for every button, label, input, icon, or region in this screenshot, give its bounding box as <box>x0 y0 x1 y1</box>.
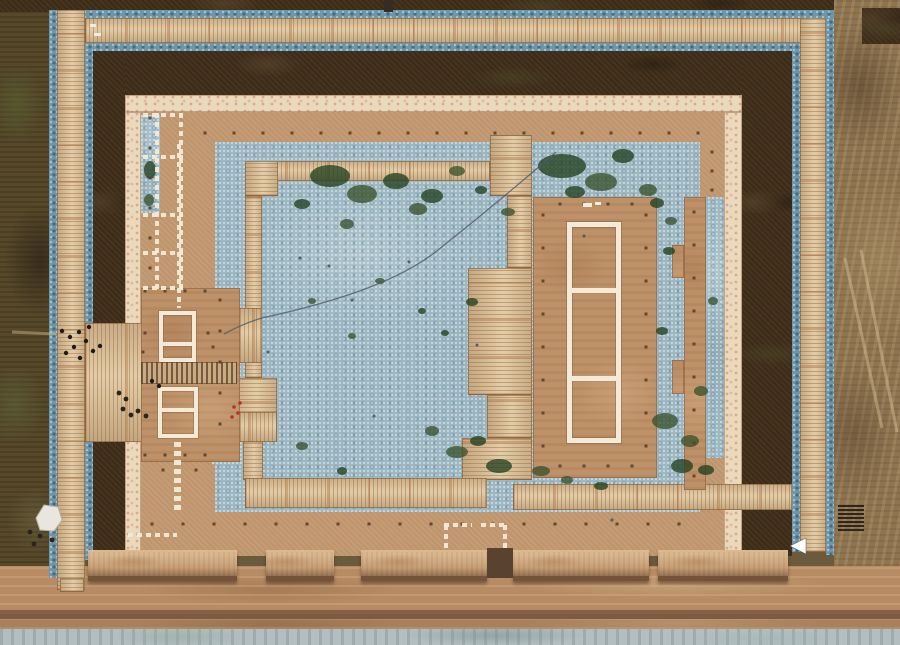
gravel-speck <box>476 344 479 347</box>
post-hole-dot <box>399 523 402 526</box>
post-hole-dot <box>162 469 165 472</box>
moss-patch <box>708 297 718 305</box>
post-hole-dot <box>149 177 152 180</box>
moss-patch <box>538 154 586 178</box>
field-trail <box>12 332 56 334</box>
gravel-speck <box>351 299 354 302</box>
gravel-speck <box>583 235 586 238</box>
moss-patch <box>144 161 156 179</box>
visitor-person <box>150 379 154 383</box>
moss-patch <box>294 199 310 209</box>
post-hole-dot <box>542 247 545 250</box>
moss-patch <box>449 166 465 176</box>
gravel-speck <box>267 351 270 354</box>
post-hole-dot <box>693 343 696 346</box>
post-hole-dot <box>711 170 714 173</box>
post-hole-dot <box>711 189 714 192</box>
post-hole-dot <box>631 203 634 206</box>
moss-patch <box>347 185 377 203</box>
post-hole-dot <box>142 351 145 354</box>
equipment-mark <box>32 542 37 547</box>
post-hole-dot <box>542 214 545 217</box>
moss-patch <box>565 186 585 198</box>
moss-patch <box>144 194 154 206</box>
visitor-person <box>98 344 102 348</box>
moss-patch <box>694 386 708 396</box>
moss-patch <box>425 426 439 436</box>
post-hole-dot <box>645 346 648 349</box>
post-hole-dot <box>378 132 381 135</box>
moss-patch <box>665 217 677 225</box>
post-hole-dot <box>212 346 215 349</box>
post-hole-dot <box>610 132 613 135</box>
gravel-speck <box>328 265 331 268</box>
white-object <box>94 33 101 36</box>
post-hole-dot <box>144 454 147 457</box>
visitor-person <box>77 330 81 334</box>
moss-patch <box>656 327 668 335</box>
direction-arrow <box>790 538 806 554</box>
moss-patch <box>501 208 515 216</box>
post-hole-dot <box>337 523 340 526</box>
post-hole-dot <box>631 465 634 468</box>
post-hole-dot <box>645 313 648 316</box>
post-hole-dot <box>693 211 696 214</box>
equipment-mark <box>28 530 33 535</box>
post-hole-dot <box>219 423 222 426</box>
post-hole-dot <box>523 523 526 526</box>
post-hole-dot <box>195 469 198 472</box>
moss-patch <box>698 465 714 475</box>
red-paint-mark <box>236 411 240 415</box>
post-hole-dot <box>149 267 152 270</box>
post-hole-dot <box>149 237 152 240</box>
post-hole-dot <box>693 310 696 313</box>
post-hole-dot <box>554 523 557 526</box>
moss-patch <box>671 459 693 473</box>
moss-patch <box>308 298 316 304</box>
moss-patch <box>681 435 699 447</box>
post-hole-dot <box>585 523 588 526</box>
visitor-person <box>87 325 91 329</box>
post-hole-dot <box>149 117 152 120</box>
visitor-person <box>72 345 76 349</box>
post-hole-dot <box>182 523 185 526</box>
moss-patch <box>409 203 427 215</box>
post-hole-dot <box>306 523 309 526</box>
post-hole-dot <box>542 280 545 283</box>
post-hole-dot <box>368 523 371 526</box>
equipment-mark <box>50 538 55 543</box>
post-hole-dot <box>668 132 671 135</box>
post-hole-dot <box>436 132 439 135</box>
visitor-person <box>157 384 161 388</box>
post-hole-dot <box>184 290 187 293</box>
post-hole-dot <box>465 132 468 135</box>
post-hole-dot <box>552 132 555 135</box>
visitor-person <box>91 349 95 353</box>
visitor-person <box>60 329 64 333</box>
post-hole-dot <box>219 299 222 302</box>
post-hole-dot <box>542 379 545 382</box>
post-hole-dot <box>693 409 696 412</box>
post-hole-dot <box>542 346 545 349</box>
visitor-person <box>84 339 88 343</box>
equipment-mark <box>117 391 122 396</box>
gravel-speck <box>373 415 376 418</box>
aerial-photo <box>0 0 900 645</box>
post-hole-dot <box>645 247 648 250</box>
post-hole-dot <box>581 132 584 135</box>
moss-patch <box>561 476 573 484</box>
post-hole-dot <box>559 465 562 468</box>
moss-patch <box>310 165 350 187</box>
post-hole-dot <box>430 523 433 526</box>
post-hole-dot <box>204 290 207 293</box>
post-hole-dot <box>149 207 152 210</box>
moss-patch <box>532 466 550 476</box>
post-hole-dot <box>542 412 545 415</box>
post-hole-dot <box>697 132 700 135</box>
post-hole-dot <box>523 132 526 135</box>
equipment-mark <box>124 397 129 402</box>
dark-object-north <box>384 0 393 12</box>
post-hole-dot <box>494 132 497 135</box>
post-hole-dot <box>645 214 648 217</box>
moss-patch <box>337 467 347 475</box>
moss-patch <box>585 173 617 191</box>
post-hole-dot <box>542 445 545 448</box>
red-paint-mark <box>238 401 242 405</box>
moss-patch <box>486 459 512 473</box>
post-hole-dot <box>607 203 610 206</box>
visitor-person <box>78 356 82 360</box>
visitor-person <box>64 351 68 355</box>
moss-patch <box>612 149 634 163</box>
white-tarp <box>36 505 62 531</box>
post-hole-dot <box>639 132 642 135</box>
red-paint-mark <box>230 415 234 419</box>
gravel-speck <box>408 261 411 264</box>
post-hole-dot <box>645 280 648 283</box>
equipment-mark <box>144 414 149 419</box>
post-hole-dot <box>645 379 648 382</box>
equipment-mark <box>136 409 141 414</box>
post-hole-dot <box>207 332 210 335</box>
post-hole-dot <box>542 313 545 316</box>
moss-patch <box>296 442 308 450</box>
post-hole-dot <box>583 465 586 468</box>
post-hole-dot <box>320 132 323 135</box>
white-object <box>90 24 96 27</box>
post-hole-dot <box>149 147 152 150</box>
post-hole-dot <box>693 442 696 445</box>
gravel-speck <box>299 257 302 260</box>
field-trail <box>861 250 897 432</box>
post-hole-dot <box>219 330 222 333</box>
post-hole-dot <box>219 361 222 364</box>
post-hole-dot <box>262 132 265 135</box>
moss-patch <box>340 219 354 229</box>
post-hole-dot <box>693 277 696 280</box>
post-hole-dot <box>693 244 696 247</box>
equipment-mark <box>129 413 134 418</box>
moss-patch <box>466 298 478 306</box>
visitor-person <box>68 335 72 339</box>
moss-patch <box>663 247 675 255</box>
post-hole-dot <box>711 151 714 154</box>
post-hole-dot <box>647 523 650 526</box>
post-hole-dot <box>204 454 207 457</box>
moss-patch <box>446 446 468 458</box>
moss-patch <box>475 186 487 194</box>
moss-patch <box>383 173 409 189</box>
moss-patch <box>421 189 443 203</box>
post-hole-dot <box>291 132 294 135</box>
field-trail <box>845 258 882 428</box>
post-hole-dot <box>616 523 619 526</box>
equipment-mark <box>38 534 43 539</box>
post-hole-dot <box>213 523 216 526</box>
white-object <box>583 203 592 207</box>
equipment-mark <box>121 407 126 412</box>
moss-patch <box>594 482 608 490</box>
gravel-speck <box>611 519 614 522</box>
post-hole-dot <box>244 523 247 526</box>
post-hole-dot <box>349 132 352 135</box>
post-hole-dot <box>407 132 410 135</box>
moss-patch <box>470 436 486 446</box>
post-hole-dot <box>219 392 222 395</box>
red-paint-mark <box>232 405 236 409</box>
post-hole-dot <box>693 475 696 478</box>
post-hole-dot <box>645 412 648 415</box>
post-hole-dot <box>275 523 278 526</box>
post-hole-dot <box>144 332 147 335</box>
moss-patch <box>650 198 664 208</box>
post-hole-dot <box>184 454 187 457</box>
post-hole-dot <box>233 132 236 135</box>
moss-patch <box>418 308 426 314</box>
post-hole-dot <box>164 454 167 457</box>
moss-patch <box>441 330 449 336</box>
post-hole-dot <box>559 203 562 206</box>
post-hole-dot <box>645 445 648 448</box>
post-hole-dot <box>693 376 696 379</box>
white-object <box>595 202 601 205</box>
detail-overlay <box>0 0 900 645</box>
moss-patch <box>639 184 657 196</box>
post-hole-dot <box>204 132 207 135</box>
moss-patch <box>348 333 356 339</box>
post-hole-dot <box>151 523 154 526</box>
post-hole-dot <box>607 465 610 468</box>
moss-patch <box>652 413 678 429</box>
post-hole-dot <box>678 523 681 526</box>
